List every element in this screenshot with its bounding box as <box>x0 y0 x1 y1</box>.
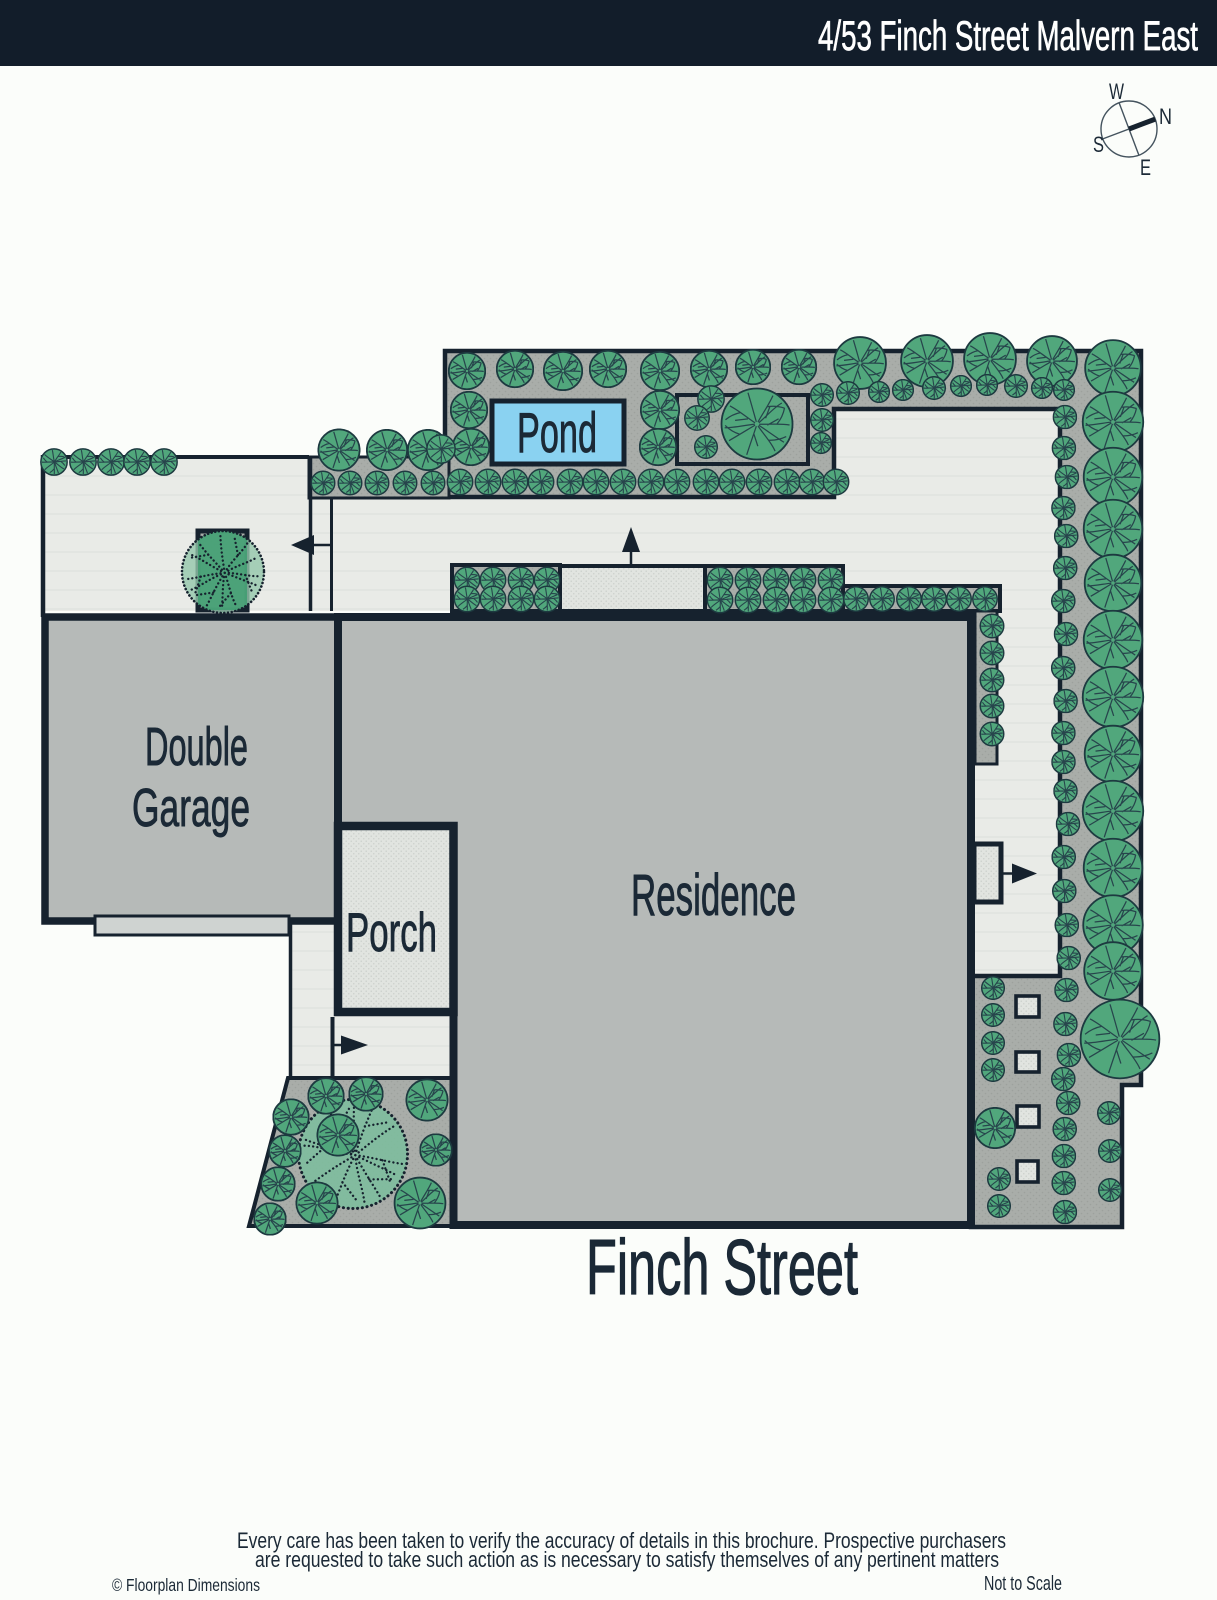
svg-text:are requested to take such act: are requested to take such action as is … <box>255 1547 999 1572</box>
svg-text:S: S <box>1093 132 1104 157</box>
svg-text:Porch: Porch <box>346 901 437 963</box>
svg-text:Garage: Garage <box>132 778 250 838</box>
svg-text:© Floorplan Dimensions: © Floorplan Dimensions <box>112 1575 260 1595</box>
svg-text:W: W <box>1109 79 1124 104</box>
svg-text:N: N <box>1159 104 1172 129</box>
svg-text:4/53 Finch Street Malvern East: 4/53 Finch Street Malvern East <box>818 12 1198 59</box>
svg-text:Not to Scale: Not to Scale <box>984 1573 1062 1595</box>
svg-text:E: E <box>1140 155 1151 180</box>
svg-text:Double: Double <box>145 717 248 777</box>
svg-text:Residence: Residence <box>631 863 796 928</box>
svg-text:Pond: Pond <box>517 401 597 465</box>
svg-text:Finch Street: Finch Street <box>586 1223 858 1311</box>
